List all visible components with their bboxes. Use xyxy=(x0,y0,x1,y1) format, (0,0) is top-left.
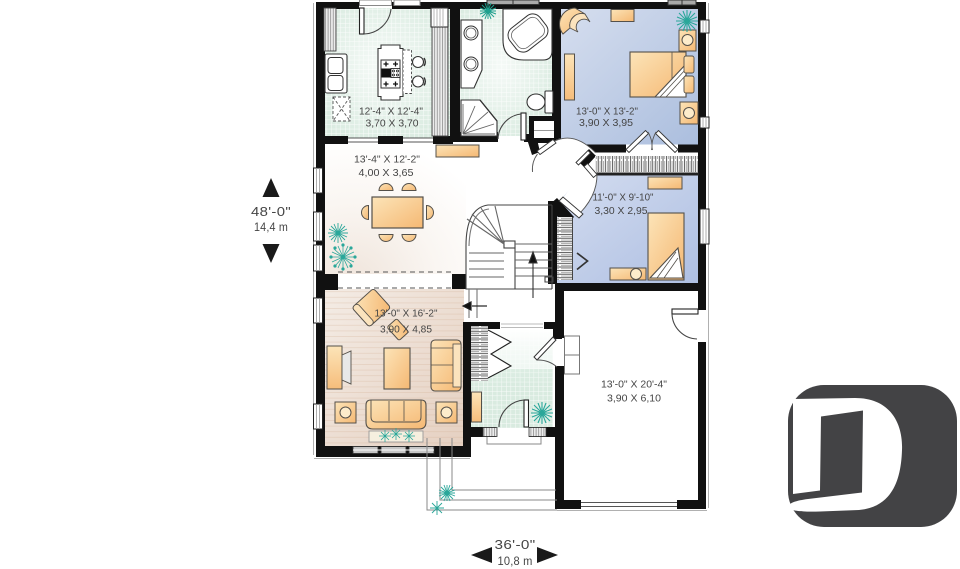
svg-text:13'-4" X 12'-2": 13'-4" X 12'-2" xyxy=(354,154,420,166)
svg-text:48'-0": 48'-0" xyxy=(251,204,291,219)
svg-text:4,00 X 3,65: 4,00 X 3,65 xyxy=(359,167,414,179)
svg-text:13'-0" X 16'-2": 13'-0" X 16'-2" xyxy=(375,308,438,320)
svg-text:36'-0": 36'-0" xyxy=(495,537,536,552)
svg-text:3,90 X 3,95: 3,90 X 3,95 xyxy=(579,117,633,129)
svg-text:3,90 X 6,10: 3,90 X 6,10 xyxy=(607,393,661,405)
svg-text:13'-0" X 20'-4": 13'-0" X 20'-4" xyxy=(601,379,667,391)
svg-text:11'-0" X 9'-10": 11'-0" X 9'-10" xyxy=(593,192,654,204)
svg-text:12'-4" X 12'-4": 12'-4" X 12'-4" xyxy=(359,106,423,118)
svg-text:3,90 X 4,85: 3,90 X 4,85 xyxy=(380,324,432,336)
svg-text:3,70 X 3,70: 3,70 X 3,70 xyxy=(366,118,419,130)
svg-text:13'-0" X 13'-2": 13'-0" X 13'-2" xyxy=(576,106,638,118)
svg-text:3,30 X 2,95: 3,30 X 2,95 xyxy=(595,205,648,217)
svg-text:10,8 m: 10,8 m xyxy=(498,556,533,568)
svg-text:14,4 m: 14,4 m xyxy=(254,222,288,234)
